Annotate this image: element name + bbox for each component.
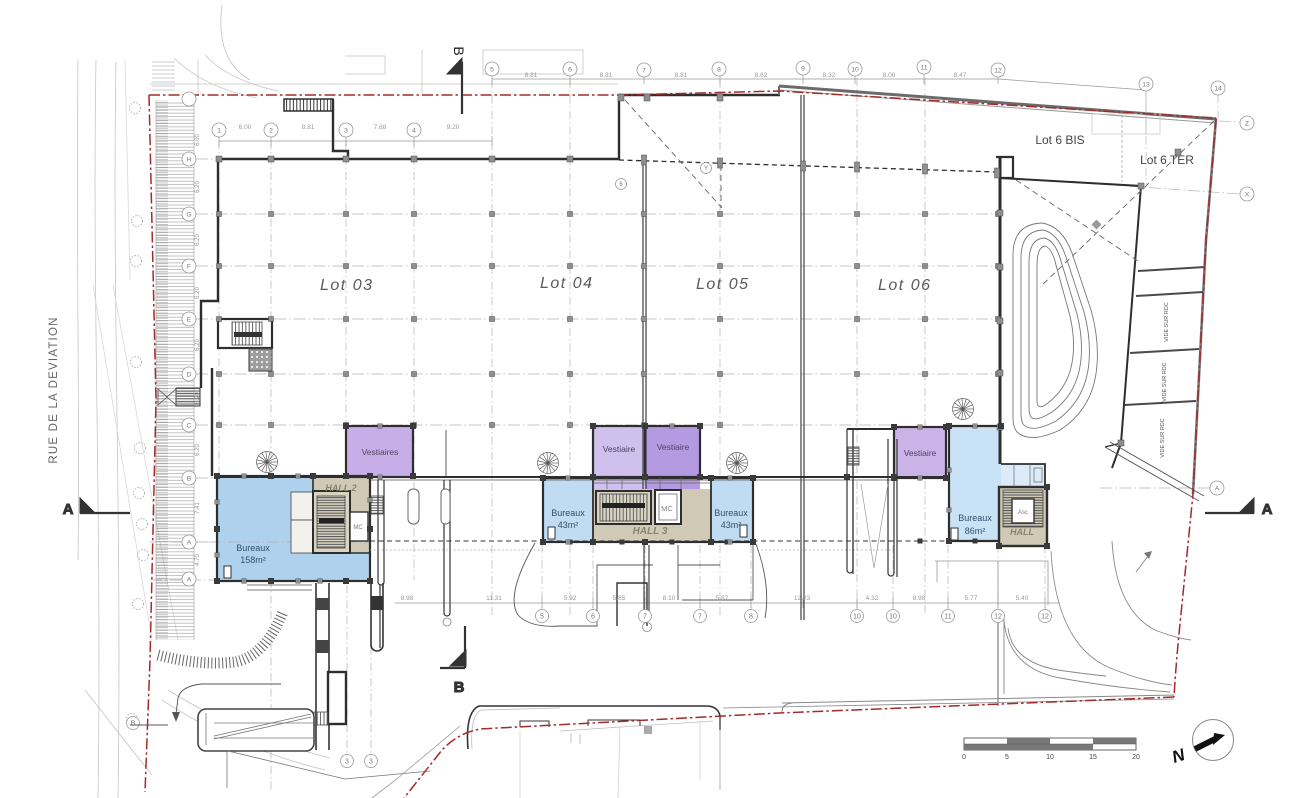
svg-text:12: 12 [994,614,1002,621]
svg-text:8.81: 8.81 [525,72,538,79]
svg-text:8.47: 8.47 [954,72,967,79]
svg-text:Lot 6 BIS: Lot 6 BIS [1035,133,1084,147]
svg-text:HALL: HALL [1010,527,1034,537]
svg-text:Y: Y [704,166,708,172]
svg-text:10: 10 [853,614,861,621]
svg-text:5.40: 5.40 [1016,595,1029,602]
svg-text:10: 10 [1046,754,1054,761]
svg-text:G: G [186,211,191,218]
svg-text:X: X [1245,191,1250,198]
svg-text:Lot 6 TER: Lot 6 TER [1140,153,1194,167]
svg-text:6: 6 [568,66,572,73]
svg-text:20: 20 [1132,754,1140,761]
svg-text:VIDE SUR RDC: VIDE SUR RDC [1160,418,1166,457]
svg-text:13: 13 [1142,81,1150,88]
svg-text:5: 5 [540,614,544,621]
svg-text:8: 8 [749,614,753,621]
svg-text:6.00: 6.00 [195,134,201,146]
svg-text:6: 6 [591,614,595,621]
svg-text:6.20: 6.20 [195,339,201,351]
svg-text:Vestiaire: Vestiaire [904,448,937,458]
svg-text:5.87: 5.87 [716,595,729,602]
svg-text:8.81: 8.81 [675,72,688,79]
svg-text:6.20: 6.20 [195,287,201,299]
svg-text:4.32: 4.32 [866,595,879,602]
svg-text:Lot 04: Lot 04 [540,275,593,292]
svg-text:11: 11 [920,64,927,71]
svg-text:B: B [131,721,136,728]
svg-text:7: 7 [643,614,647,621]
svg-text:Vestiaire: Vestiaire [603,444,636,454]
svg-text:8.81: 8.81 [302,124,315,131]
svg-text:158m²: 158m² [240,555,266,565]
svg-text:7: 7 [698,614,702,621]
svg-text:3: 3 [345,759,349,766]
svg-text:12: 12 [994,67,1002,74]
svg-text:86m²: 86m² [965,526,986,536]
svg-text:D: D [187,371,192,378]
svg-text:9: 9 [801,65,805,72]
svg-text:3: 3 [369,759,373,766]
svg-text:12: 12 [1041,614,1049,621]
svg-text:Vestiaire: Vestiaire [657,442,690,452]
svg-text:8.62: 8.62 [755,72,768,79]
svg-text:Vestiaires: Vestiaires [362,447,399,457]
svg-text:H: H [187,156,192,163]
svg-text:11.31: 11.31 [486,595,502,602]
svg-text:5.92: 5.92 [564,595,577,602]
svg-text:5: 5 [490,66,494,73]
svg-text:C: C [187,422,192,429]
svg-text:10: 10 [851,66,859,73]
svg-text:E: E [187,316,192,323]
svg-text:6.20: 6.20 [195,392,201,404]
svg-text:11: 11 [944,614,951,621]
svg-text:A: A [1262,501,1273,518]
svg-text:6.00: 6.00 [239,124,252,131]
svg-text:7: 7 [642,67,646,74]
svg-text:12.23: 12.23 [794,595,811,602]
svg-text:4: 4 [412,127,416,134]
svg-text:8.98: 8.98 [401,595,414,602]
svg-text:43m²: 43m² [721,520,742,530]
svg-text:B: B [187,475,192,482]
svg-text:VIDE SUR RDC: VIDE SUR RDC [1162,362,1168,401]
svg-text:Bureaux: Bureaux [551,508,585,518]
svg-text:A: A [63,501,74,518]
svg-text:8.98: 8.98 [913,595,926,602]
svg-text:Z: Z [1245,120,1249,127]
svg-text:5.77: 5.77 [965,595,978,602]
svg-text:4.70: 4.70 [195,554,201,566]
svg-text:14: 14 [1214,85,1222,92]
svg-text:7.41: 7.41 [195,502,201,514]
svg-text:Lot 06: Lot 06 [878,277,931,294]
svg-text:Asc: Asc [1018,510,1028,516]
svg-text:Bureaux: Bureaux [714,508,748,518]
svg-text:6.20: 6.20 [195,181,201,193]
svg-text:HALL 2: HALL 2 [325,483,356,493]
svg-text:HALL 3: HALL 3 [633,526,668,537]
svg-text:6.20: 6.20 [195,444,201,456]
svg-text:9.20: 9.20 [447,124,460,131]
svg-text:5.85: 5.85 [613,595,626,602]
svg-text:3: 3 [344,127,348,134]
svg-text:7.68: 7.68 [374,124,387,131]
svg-text:1: 1 [217,127,221,134]
svg-text:MC: MC [353,525,363,531]
svg-text:8.00: 8.00 [883,72,896,79]
svg-text:Bureaux: Bureaux [958,513,992,523]
svg-text:A: A [187,576,192,583]
svg-text:10: 10 [889,614,897,621]
svg-text:0: 0 [962,754,966,761]
svg-text:B: B [454,679,465,696]
svg-text:8.81: 8.81 [600,72,613,79]
svg-text:5: 5 [1005,754,1009,761]
svg-text:8: 8 [717,66,721,73]
svg-text:6.20: 6.20 [195,234,201,246]
svg-text:A: A [187,539,192,546]
svg-text:43m²: 43m² [558,520,579,530]
svg-text:MC: MC [661,504,673,513]
svg-text:VIDE SUR RDC: VIDE SUR RDC [1164,302,1170,341]
svg-text:Lot 03: Lot 03 [320,277,373,294]
svg-text:F: F [187,263,191,270]
svg-text:2: 2 [269,127,273,134]
svg-text:8.32: 8.32 [823,72,836,79]
svg-text:15: 15 [1089,754,1097,761]
svg-text:Lot 05: Lot 05 [696,276,749,293]
svg-text:B: B [451,46,467,55]
svg-text:RUE DE LA DEVIATION: RUE DE LA DEVIATION [48,316,60,463]
svg-text:A: A [1215,485,1220,492]
svg-text:8.10: 8.10 [663,595,676,602]
svg-text:Bureaux: Bureaux [236,543,270,553]
